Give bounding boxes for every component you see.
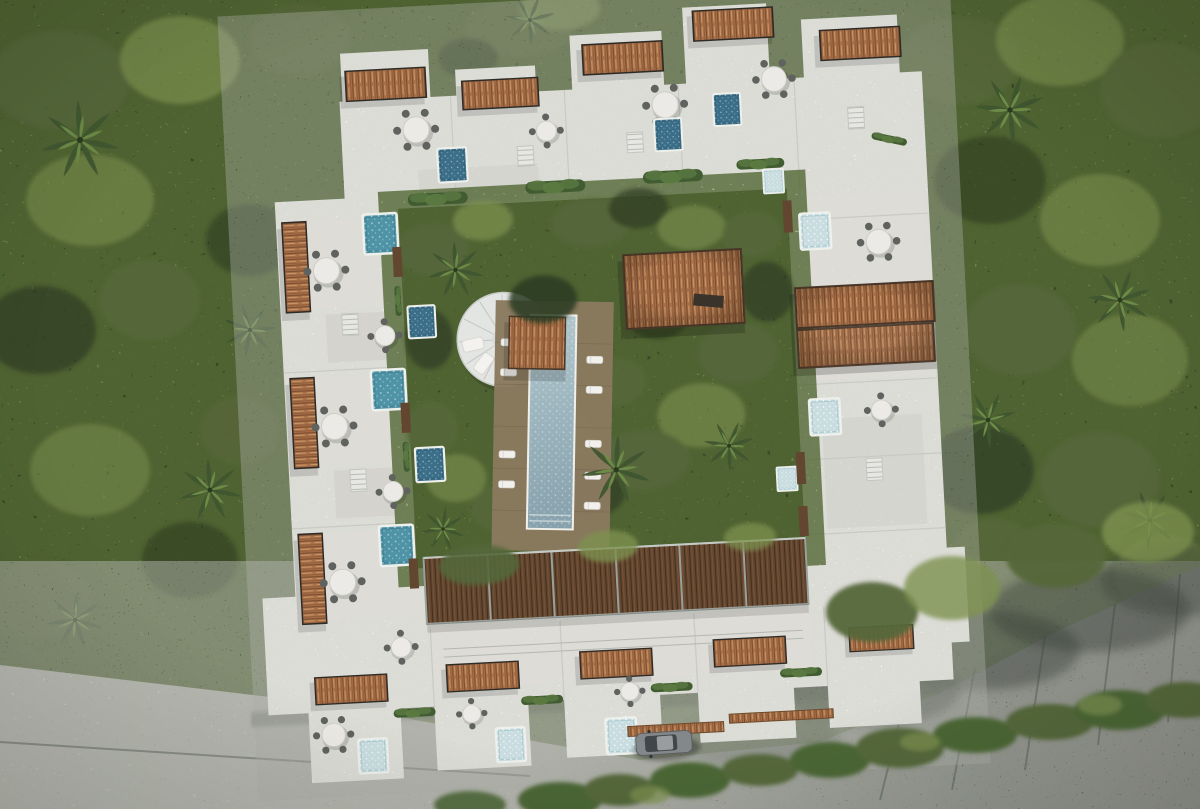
vignette-overlay [0,0,1200,809]
aerial-render-canvas [0,0,1200,809]
aerial-render-image [0,0,1200,809]
